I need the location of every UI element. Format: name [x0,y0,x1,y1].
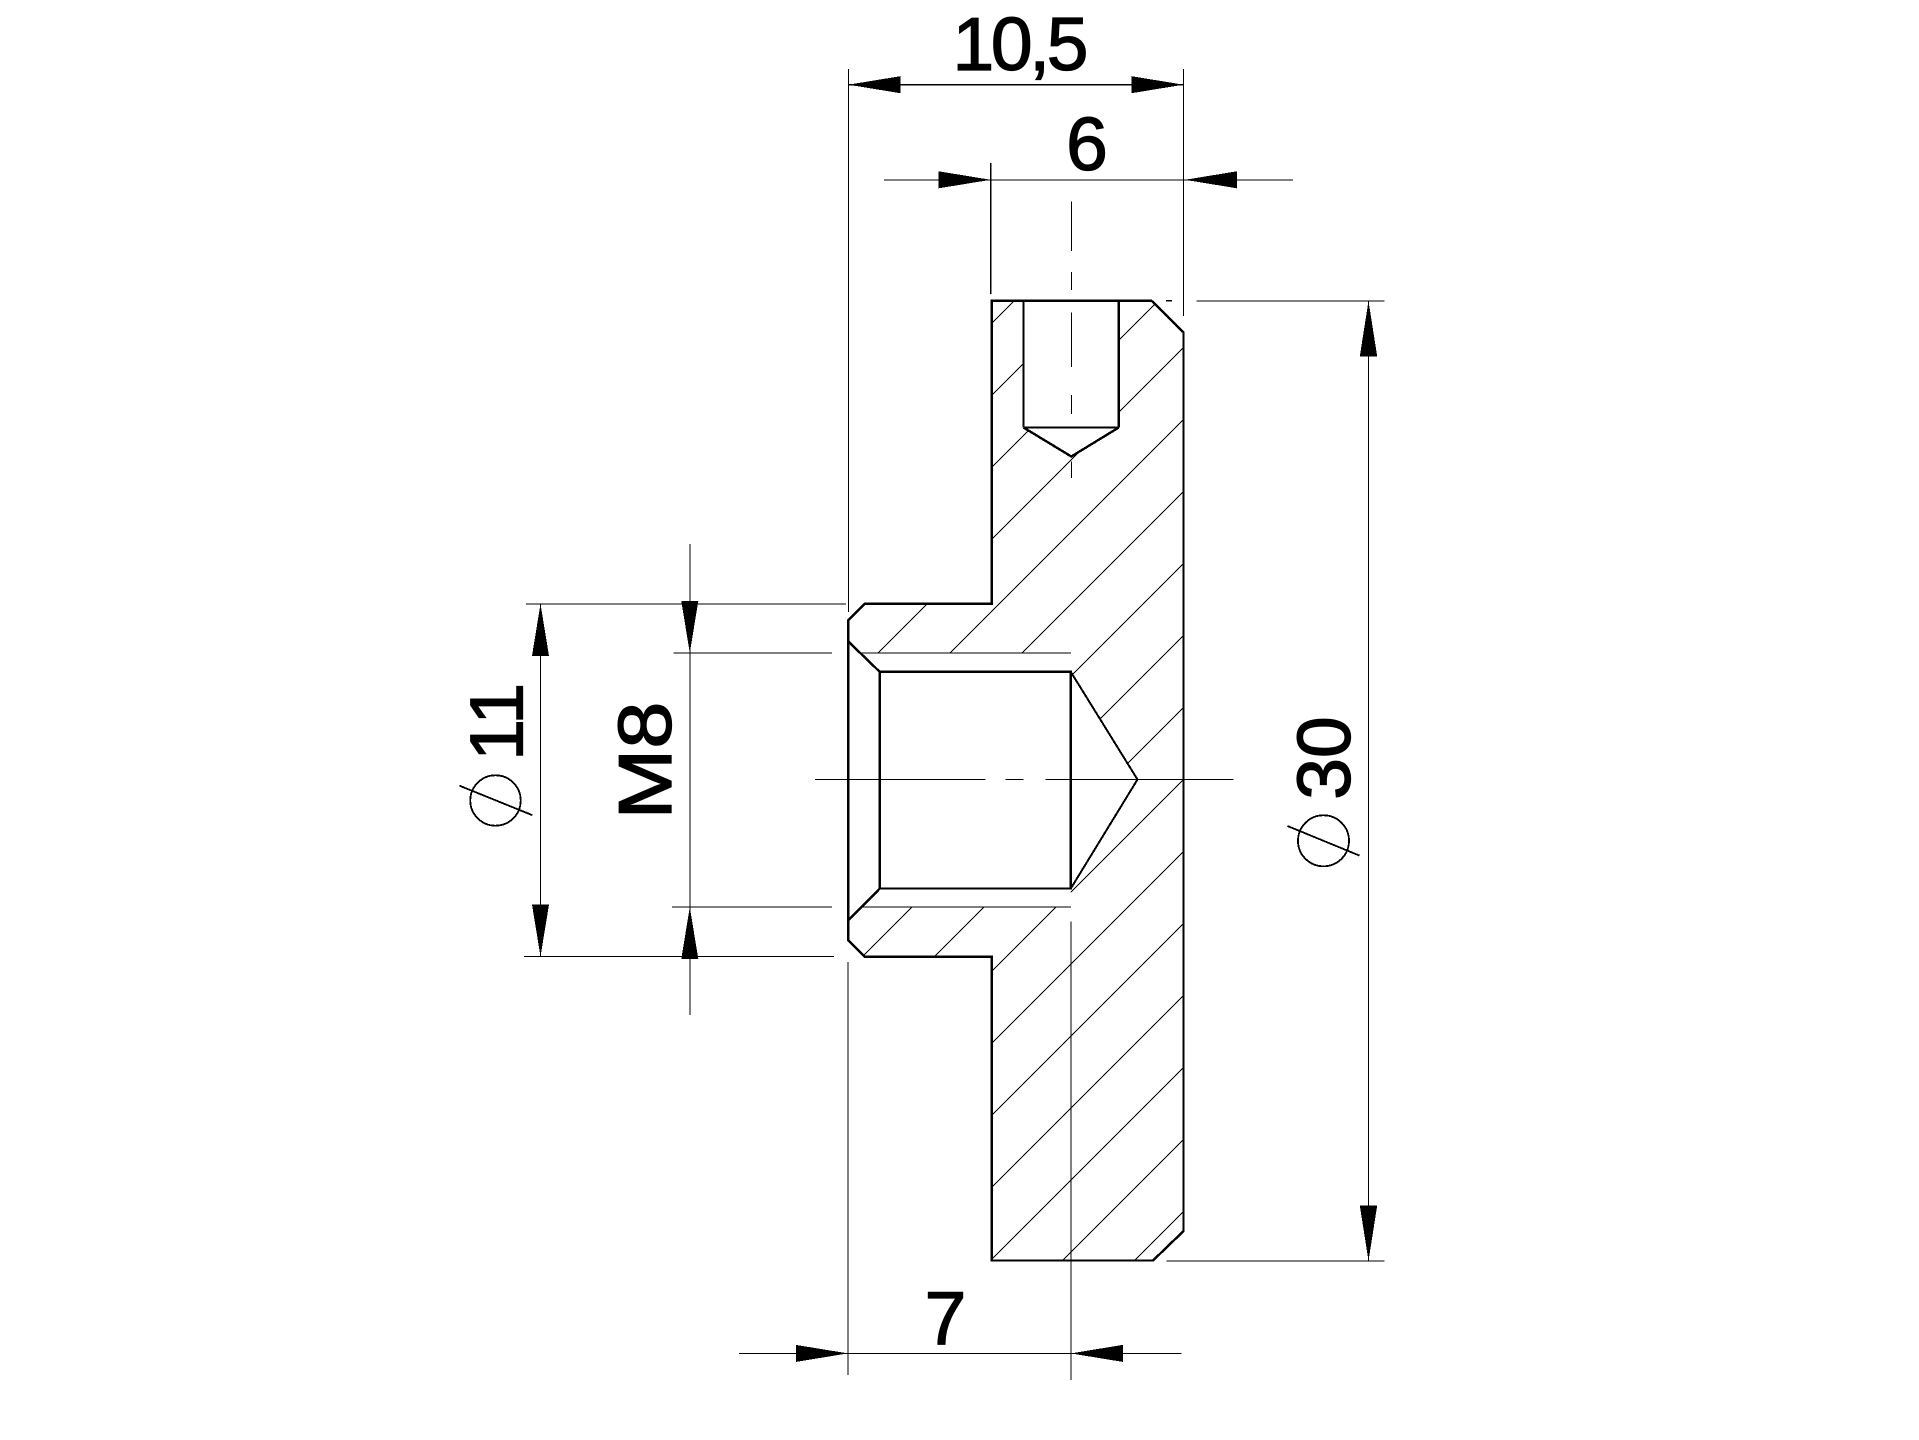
svg-text:11: 11 [454,683,538,761]
svg-text:30: 30 [1282,716,1366,799]
svg-text:M8: M8 [603,702,687,820]
svg-text:6: 6 [1066,102,1108,186]
svg-text:10,5: 10,5 [953,2,1089,86]
svg-text:7: 7 [925,1276,967,1360]
